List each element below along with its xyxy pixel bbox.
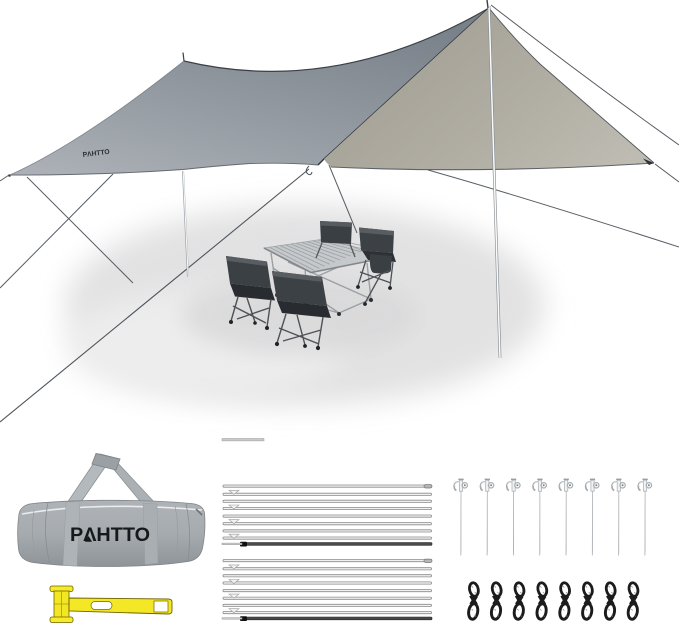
svg-text:PΛHTTO: PΛHTTO	[70, 525, 150, 546]
